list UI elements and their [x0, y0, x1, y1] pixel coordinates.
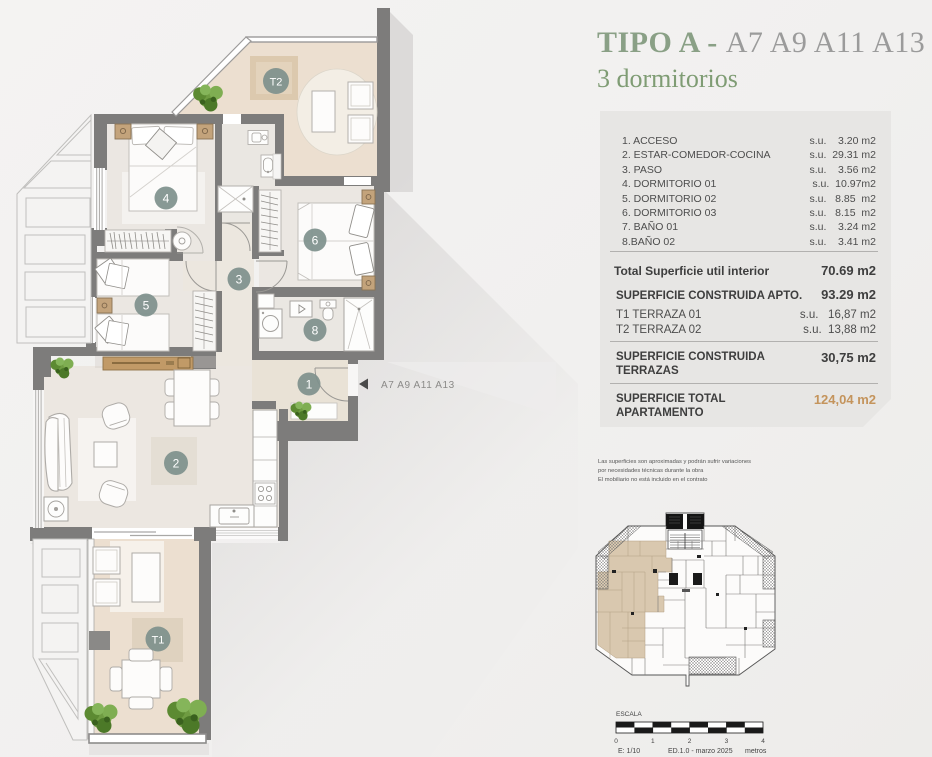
svg-text:T1: T1: [152, 635, 165, 647]
svg-text:ED.1.0 - marzo 2025: ED.1.0 - marzo 2025: [668, 748, 733, 755]
svg-text:T2: T2: [270, 77, 283, 89]
svg-text:4: 4: [163, 192, 170, 206]
svg-text:4: 4: [761, 738, 765, 745]
svg-text:2: 2: [173, 457, 180, 471]
svg-text:A7 A9 A11 A13: A7 A9 A11 A13: [381, 380, 455, 391]
svg-text:5: 5: [143, 299, 150, 313]
svg-text:1: 1: [651, 738, 655, 745]
svg-text:8: 8: [312, 324, 319, 338]
svg-text:3: 3: [236, 273, 243, 287]
svg-text:6: 6: [312, 234, 319, 248]
svg-text:3: 3: [725, 738, 729, 745]
svg-text:0: 0: [614, 738, 618, 745]
svg-text:1: 1: [306, 378, 313, 392]
svg-text:E: 1/10: E: 1/10: [618, 748, 640, 755]
svg-text:2: 2: [688, 738, 692, 745]
svg-text:metros: metros: [745, 748, 767, 755]
svg-text:ESCALA: ESCALA: [616, 711, 642, 718]
